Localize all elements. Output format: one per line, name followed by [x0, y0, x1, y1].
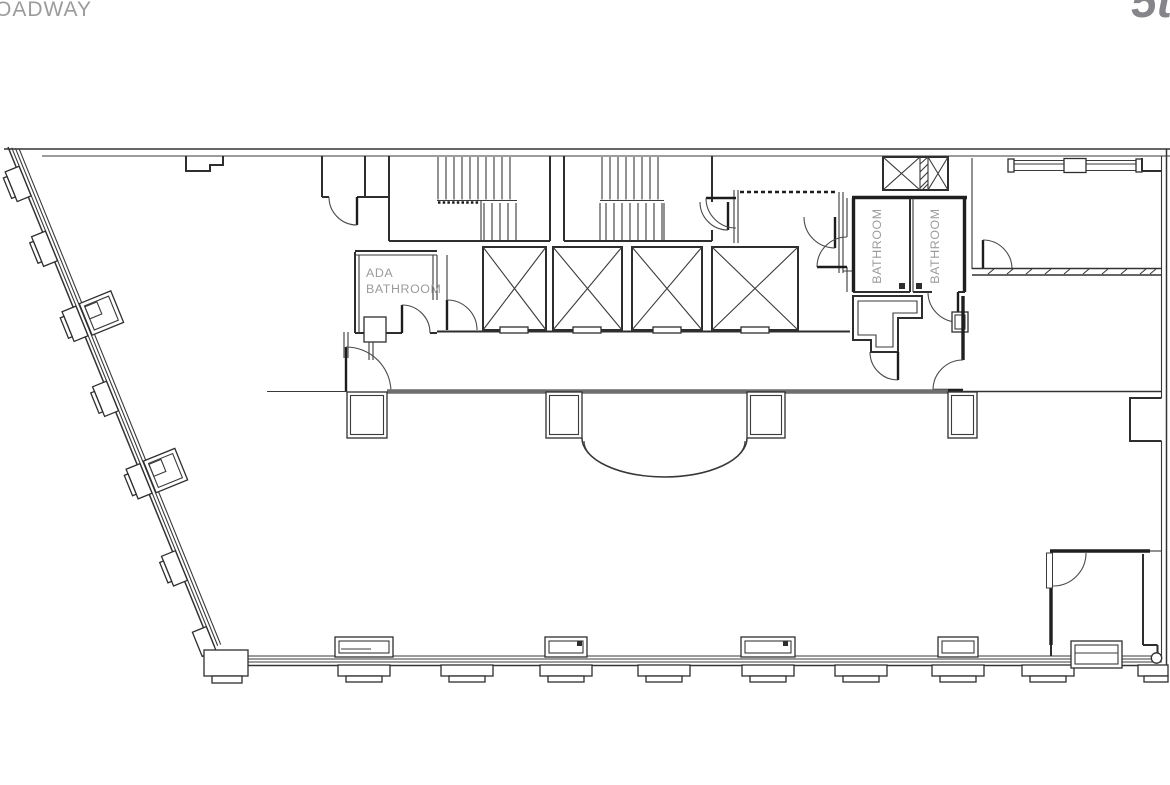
door-arc-ada-lobby	[447, 300, 477, 330]
corridor	[267, 392, 1162, 478]
door-arc-lobby-right	[804, 217, 835, 248]
vestibule-room	[322, 156, 389, 225]
elevator-2	[553, 247, 622, 333]
ada-fixture	[364, 317, 386, 342]
service-shaft	[883, 157, 948, 190]
elevator-lobby	[437, 190, 852, 332]
top-right-room	[972, 158, 1162, 269]
door-arc-core-right	[933, 360, 963, 390]
corner-pilaster	[204, 650, 248, 676]
door-arc-chase	[870, 352, 898, 380]
stair-2	[564, 156, 728, 241]
elevator-1	[483, 247, 546, 333]
column-circle	[1151, 653, 1161, 663]
bottom-window-wall	[204, 637, 1168, 683]
window-mullion	[1064, 159, 1086, 173]
hatched-partition	[972, 269, 1162, 276]
door-arc-ada	[402, 305, 430, 333]
door-arc-bottom-right-room	[1053, 553, 1086, 586]
plumbing-chase	[853, 296, 968, 390]
ada-bathroom-label-line2: BATHROOM	[366, 282, 441, 296]
door-arc-top-right-room	[983, 240, 1012, 269]
column-detail-2	[143, 448, 187, 492]
column-detail-1	[79, 291, 123, 335]
stair-1	[389, 156, 550, 241]
bottom-pilasters	[338, 665, 1168, 682]
outer-walls	[4, 149, 1170, 671]
corridor-column-3	[747, 392, 785, 438]
window-boxes	[335, 637, 978, 657]
corridor-column-4	[948, 392, 977, 438]
elevator-3	[632, 247, 702, 333]
corridor-column-1	[347, 392, 387, 438]
diagonal-window-wall	[0, 132, 251, 658]
diagonal-pilasters	[1, 166, 216, 658]
bathroom-right-label: BATHROOM	[928, 208, 942, 283]
right-wall-notch	[1130, 398, 1162, 441]
ada-bathroom-label-line1: ADA	[366, 266, 393, 280]
bathroom-left-label: BATHROOM	[870, 208, 884, 283]
corridor-column-2	[546, 392, 582, 438]
bottom-right-room	[1047, 551, 1162, 668]
floor-plan-drawing: ADA BATHROOM BATHROOM	[0, 0, 1170, 785]
elevator-4	[712, 247, 798, 333]
elevator-bank	[483, 247, 798, 333]
door-arc-vestibule	[329, 197, 357, 225]
ada-bathroom-room: ADA BATHROOM	[355, 251, 477, 360]
floor-plan-page: OADWAY 5t	[0, 0, 1170, 785]
door-leaf-bottom-right	[1047, 553, 1053, 588]
curved-partition	[582, 438, 747, 477]
